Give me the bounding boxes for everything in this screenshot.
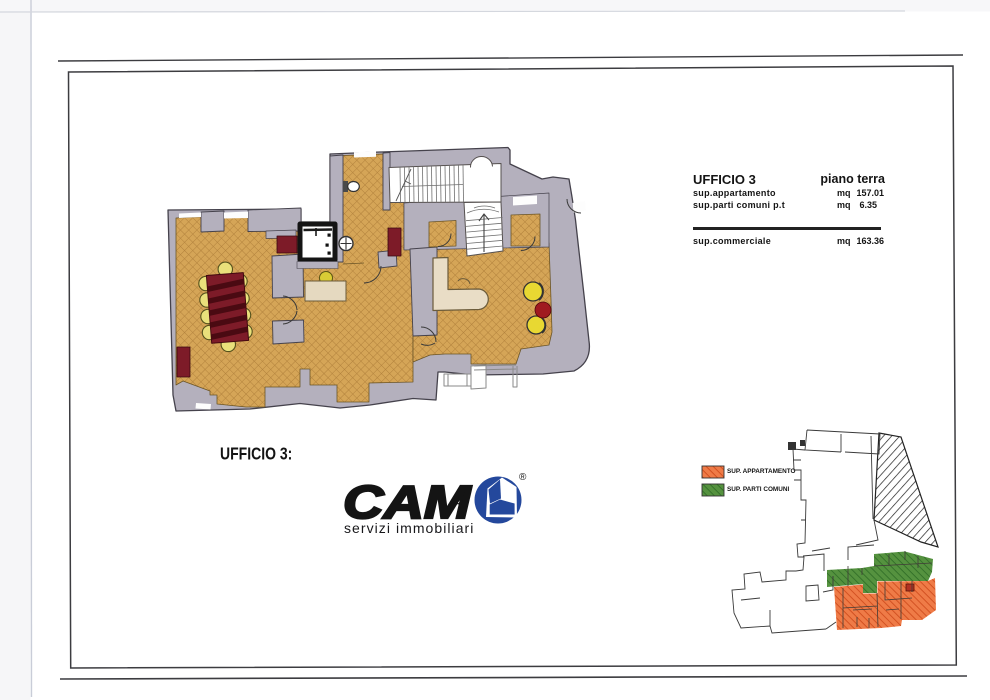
svg-text:®: ® bbox=[519, 472, 527, 483]
